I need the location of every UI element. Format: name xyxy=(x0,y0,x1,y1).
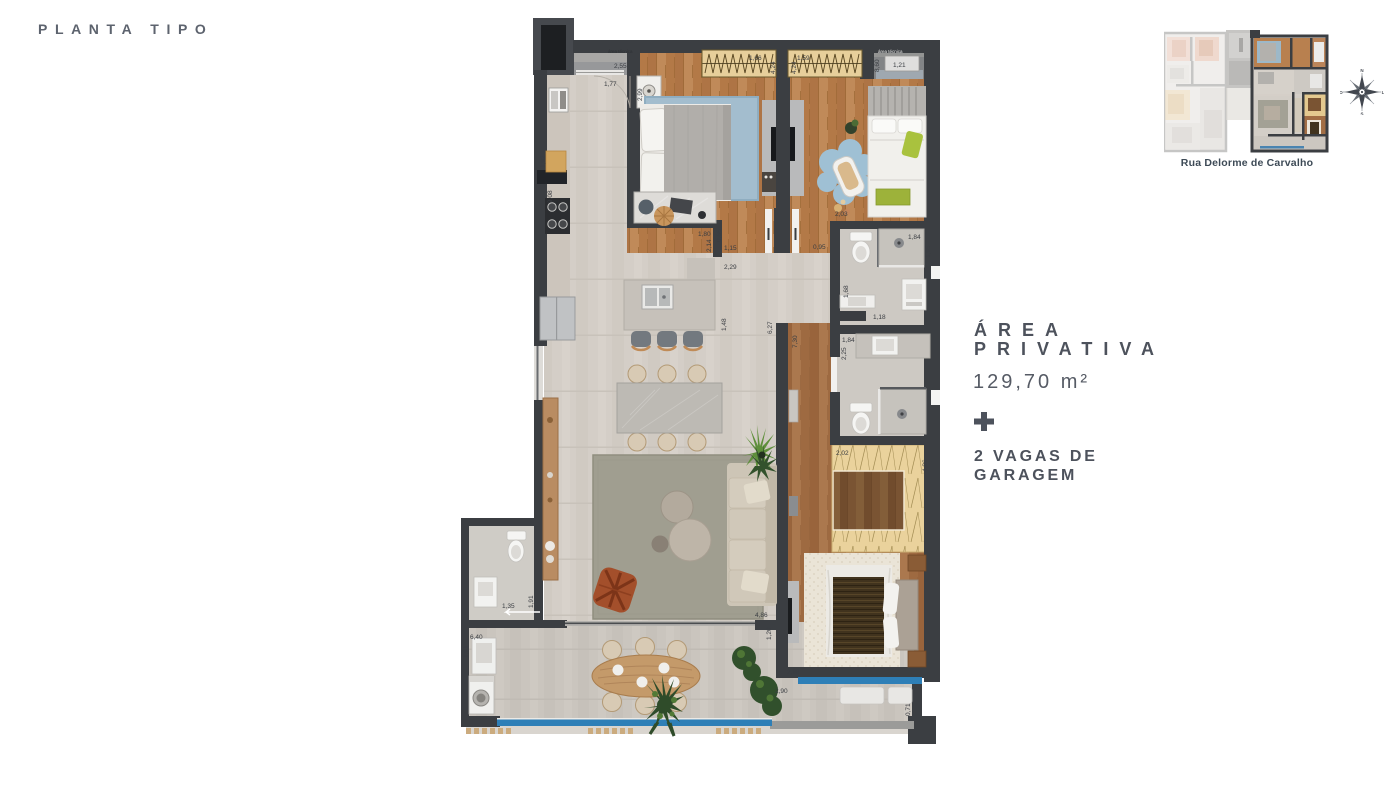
svg-text:2,90: 2,90 xyxy=(775,688,788,695)
svg-text:1,68: 1,68 xyxy=(843,285,850,298)
svg-text:7,30: 7,30 xyxy=(792,335,799,348)
svg-text:2,14: 2,14 xyxy=(706,239,713,252)
svg-text:1,35: 1,35 xyxy=(502,603,515,610)
svg-text:4,24: 4,24 xyxy=(791,61,798,74)
svg-text:1,66: 1,66 xyxy=(749,55,762,62)
svg-text:2,25: 2,25 xyxy=(841,347,848,360)
svg-text:1,84: 1,84 xyxy=(908,234,921,241)
svg-text:1,91: 1,91 xyxy=(528,595,535,608)
svg-text:4,24: 4,24 xyxy=(770,61,777,74)
svg-text:6,40: 6,40 xyxy=(470,634,483,641)
svg-text:1,18: 1,18 xyxy=(873,314,886,321)
svg-text:1,95: 1,95 xyxy=(925,245,932,258)
svg-text:1,91: 1,91 xyxy=(463,645,470,658)
svg-text:0,66: 0,66 xyxy=(716,229,723,242)
svg-text:8,60: 8,60 xyxy=(874,59,881,72)
svg-text:9,08: 9,08 xyxy=(547,190,554,203)
svg-text:1,59: 1,59 xyxy=(797,55,810,62)
svg-text:4,86: 4,86 xyxy=(922,459,929,472)
svg-text:2,03: 2,03 xyxy=(835,211,848,218)
svg-text:2,29: 2,29 xyxy=(724,264,737,271)
svg-text:1,92: 1,92 xyxy=(540,155,547,168)
svg-text:4,86: 4,86 xyxy=(755,612,768,619)
svg-text:1,48: 1,48 xyxy=(721,318,728,331)
svg-text:0,95: 0,95 xyxy=(813,244,826,251)
svg-text:1,15: 1,15 xyxy=(724,245,737,252)
svg-text:1,20: 1,20 xyxy=(766,627,773,640)
svg-text:N: N xyxy=(1360,69,1363,73)
svg-text:área técnica: área técnica xyxy=(608,49,633,54)
svg-text:O: O xyxy=(1340,90,1343,95)
svg-text:1,80: 1,80 xyxy=(698,231,711,238)
svg-text:0,71: 0,71 xyxy=(905,703,912,716)
svg-text:2,55: 2,55 xyxy=(614,63,627,70)
svg-text:L: L xyxy=(1382,90,1384,95)
svg-text:1,77: 1,77 xyxy=(604,81,617,88)
svg-text:2,88: 2,88 xyxy=(787,669,800,676)
svg-text:área técnica: área técnica xyxy=(878,49,903,54)
svg-text:S: S xyxy=(1360,112,1363,116)
svg-text:6,27: 6,27 xyxy=(767,321,774,334)
svg-text:1,21: 1,21 xyxy=(893,62,906,69)
svg-text:1,84: 1,84 xyxy=(842,337,855,344)
svg-text:2,99: 2,99 xyxy=(637,88,644,101)
svg-text:2,02: 2,02 xyxy=(836,450,849,457)
